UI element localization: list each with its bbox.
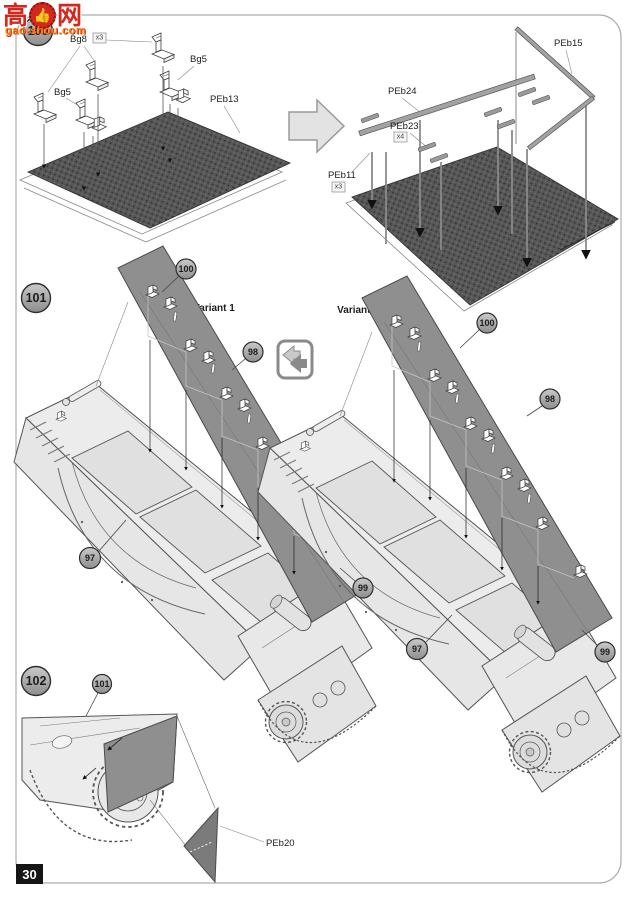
variant-swap-icon	[278, 341, 312, 378]
label-bg5-a: Bg5	[54, 87, 71, 98]
svg-text:x4: x4	[397, 134, 405, 141]
svg-text:x3: x3	[96, 35, 104, 42]
page-number-box: 30	[16, 864, 43, 884]
qty-box-bg8: x3	[93, 33, 106, 43]
step-102-badge: 102	[22, 667, 51, 696]
callout-98: 98	[545, 394, 555, 404]
callout-99: 99	[600, 647, 610, 657]
step-102-number: 102	[26, 674, 47, 688]
callout-100: 100	[479, 318, 494, 328]
step-101-number: 101	[26, 291, 47, 305]
svg-text:x3: x3	[335, 184, 343, 191]
callout-100: 100	[178, 264, 193, 274]
instruction-sheet-canvas: 100 Bg8	[0, 0, 637, 900]
qty-box-peb11: x3	[332, 182, 345, 192]
qty-box-peb23: x4	[394, 132, 407, 142]
page-number: 30	[22, 867, 36, 882]
step-101-badge: 101	[22, 284, 51, 313]
label-peb20: PEb20	[266, 838, 295, 849]
step-100-number: 100	[28, 24, 49, 38]
label-bg5-b: Bg5	[190, 54, 207, 65]
label-peb11: PEb11	[328, 170, 356, 181]
label-peb15: PEb15	[554, 38, 583, 49]
label-peb13: PEb13	[210, 94, 239, 105]
callout-101: 101	[94, 679, 109, 689]
step-100-badge: 100	[24, 17, 53, 46]
label-peb23: PEb23	[390, 121, 419, 132]
callout-98: 98	[248, 347, 258, 357]
callout-97: 97	[412, 644, 422, 654]
label-bg8: Bg8	[70, 34, 87, 45]
label-peb24: PEb24	[388, 86, 417, 97]
callout-99: 99	[358, 583, 368, 593]
callout-97: 97	[85, 553, 95, 563]
instruction-page: 100 Bg8	[0, 0, 637, 900]
